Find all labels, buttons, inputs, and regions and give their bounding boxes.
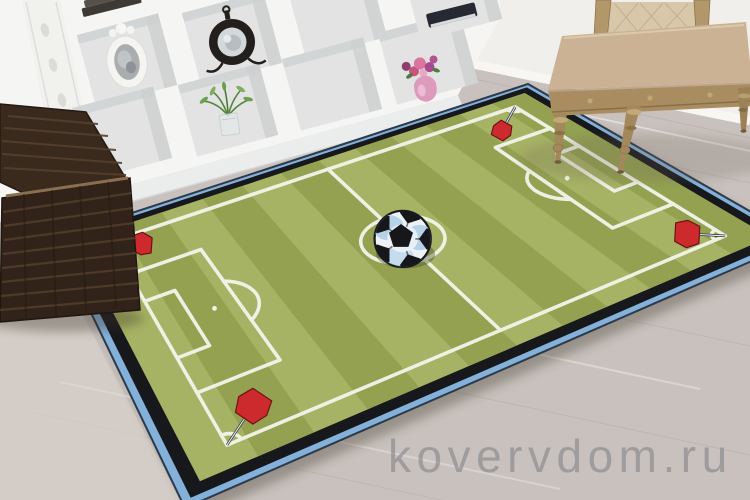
penalty-spot [212,306,217,311]
photo-scene: kovervdom.ru [0,0,750,500]
basket-body [0,178,140,322]
watermark-text: kovervdom.ru [388,430,733,482]
scene-svg: kovervdom.ru [0,0,750,500]
